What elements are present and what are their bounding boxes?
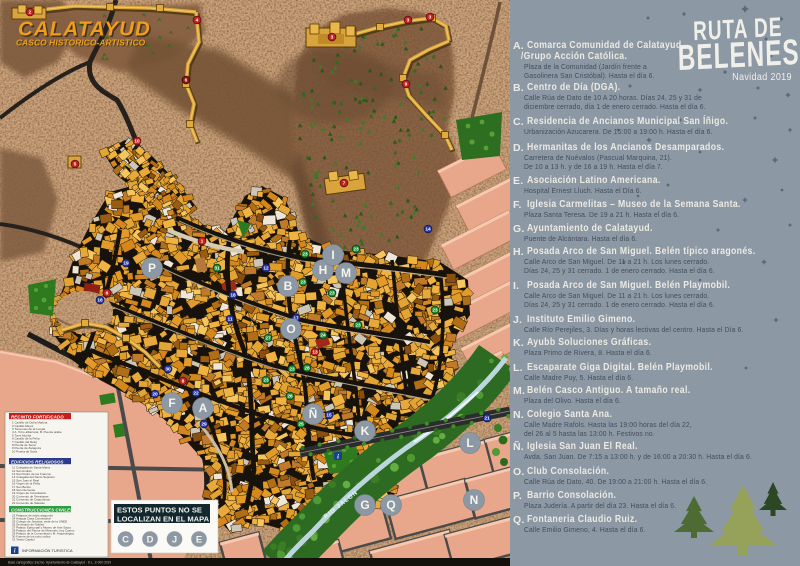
svg-text:8: 8 [182, 379, 185, 385]
svg-text:31 Teatro Capitol: 31 Teatro Capitol [12, 537, 35, 541]
svg-text:LOCALIZAN EN EL MAPA: LOCALIZAN EN EL MAPA [117, 514, 210, 523]
svg-text:14: 14 [425, 227, 431, 233]
svg-text:M: M [341, 266, 351, 280]
svg-text:10 Puerta de Soria: 10 Puerta de Soria [12, 449, 37, 453]
svg-text:31: 31 [214, 266, 220, 272]
svg-text:1: 1 [201, 239, 204, 245]
svg-text:CONSTRUCCIONES CIVILES: CONSTRUCCIONES CIVILES [11, 507, 73, 512]
svg-text:C: C [122, 535, 129, 546]
svg-text:CASCO HISTORICO-ARTISTICO: CASCO HISTORICO-ARTISTICO [16, 38, 146, 48]
svg-text:5: 5 [74, 162, 77, 168]
svg-text:23: 23 [300, 280, 306, 286]
svg-text:18: 18 [230, 293, 236, 299]
svg-text:G: G [360, 498, 369, 512]
svg-text:27: 27 [265, 336, 271, 342]
svg-text:L: L [466, 436, 473, 450]
svg-text:D: D [147, 535, 154, 546]
svg-text:10: 10 [134, 139, 140, 145]
svg-text:16: 16 [97, 298, 103, 304]
svg-text:9: 9 [405, 82, 408, 88]
svg-text:3: 3 [331, 35, 334, 41]
svg-text:Base cartográfica: Excmo. Ayun: Base cartográfica: Excmo. Ayuntamiento d… [8, 561, 111, 565]
svg-text:24: 24 [320, 333, 326, 339]
svg-text:6: 6 [106, 291, 109, 297]
svg-text:28: 28 [304, 366, 310, 372]
svg-text:22: 22 [193, 391, 199, 397]
svg-text:F: F [168, 396, 175, 410]
svg-text:13: 13 [312, 350, 318, 356]
svg-text:23: 23 [263, 378, 269, 384]
svg-text:ESTOS PUNTOS NO SE: ESTOS PUNTOS NO SE [117, 506, 202, 515]
svg-text:O: O [286, 322, 295, 336]
svg-text:4: 4 [196, 18, 199, 24]
svg-text:30: 30 [165, 367, 171, 373]
svg-text:22 Convento de Salesas: 22 Convento de Salesas [12, 501, 45, 505]
svg-text:P: P [148, 261, 156, 275]
svg-text:J: J [172, 535, 177, 546]
svg-text:I: I [331, 248, 334, 262]
svg-text:12: 12 [263, 266, 269, 272]
svg-text:11: 11 [227, 317, 232, 323]
svg-text:15: 15 [326, 413, 332, 419]
svg-text:23: 23 [329, 291, 335, 297]
svg-text:Q: Q [386, 498, 395, 512]
svg-text:3: 3 [407, 18, 410, 24]
svg-text:Ñ: Ñ [309, 406, 318, 421]
svg-text:i: i [337, 454, 339, 461]
svg-text:3: 3 [429, 15, 432, 21]
svg-text:N: N [470, 493, 479, 507]
svg-text:25: 25 [298, 422, 304, 428]
svg-text:A: A [199, 401, 208, 415]
svg-text:EDIFICIOS RELIGIOSOS: EDIFICIOS RELIGIOSOS [11, 459, 64, 464]
svg-text:K: K [361, 424, 370, 438]
svg-text:B: B [284, 279, 293, 293]
svg-text:23: 23 [355, 323, 361, 329]
svg-text:23: 23 [302, 252, 308, 258]
svg-text:INFORMACIÓN TURISTICA: INFORMACIÓN TURISTICA [22, 548, 73, 553]
svg-text:19: 19 [123, 261, 129, 267]
svg-text:23: 23 [432, 308, 438, 314]
svg-text:7: 7 [343, 181, 346, 187]
svg-text:26: 26 [287, 394, 293, 400]
svg-text:E: E [196, 535, 202, 546]
svg-text:23: 23 [289, 367, 295, 373]
svg-text:RECINTO FORTIFICADO: RECINTO FORTIFICADO [11, 414, 64, 419]
svg-text:21: 21 [484, 416, 490, 422]
svg-text:23: 23 [353, 247, 359, 253]
svg-text:H: H [319, 263, 328, 277]
svg-text:20: 20 [152, 392, 158, 398]
svg-text:2: 2 [29, 10, 32, 16]
svg-text:6: 6 [185, 78, 188, 84]
svg-text:29: 29 [201, 422, 207, 428]
